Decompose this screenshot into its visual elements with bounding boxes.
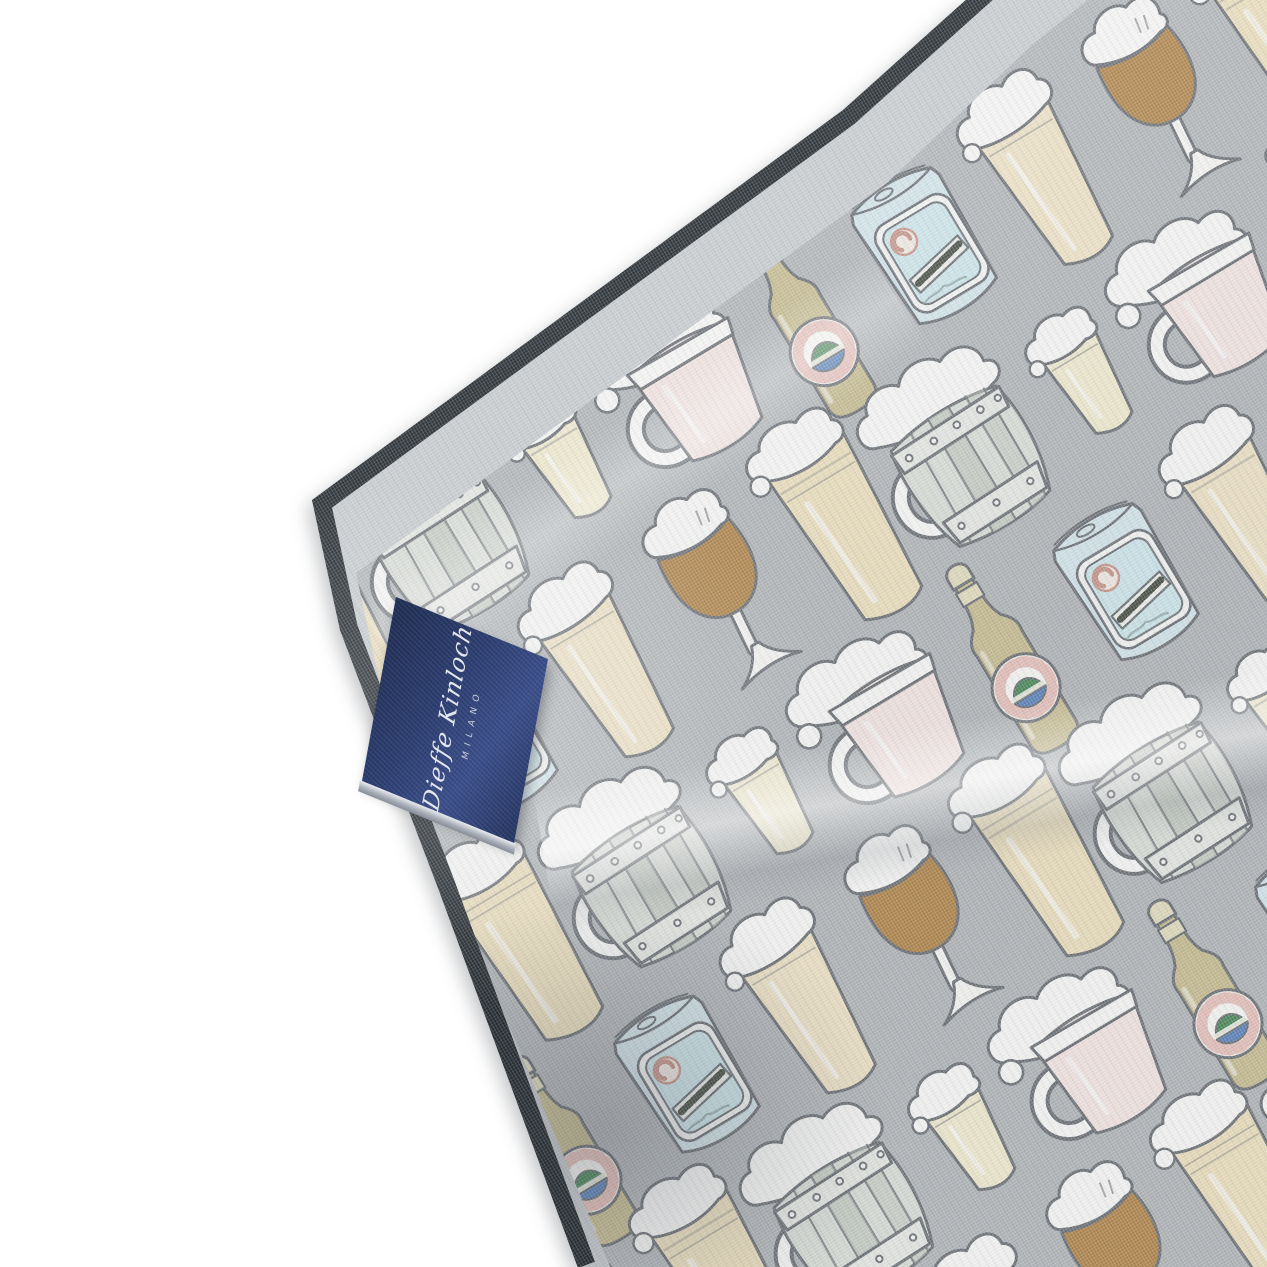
fabric-shadow (0, 0, 1267, 1267)
printed-area (0, 0, 1267, 1267)
product-photo: Dieffe Kinloch MILANO (0, 0, 1267, 1267)
pink-mug-motif (112, 749, 375, 1014)
pocket-square-fabric (0, 0, 1267, 1267)
tulip-glass-motif (76, 538, 331, 816)
